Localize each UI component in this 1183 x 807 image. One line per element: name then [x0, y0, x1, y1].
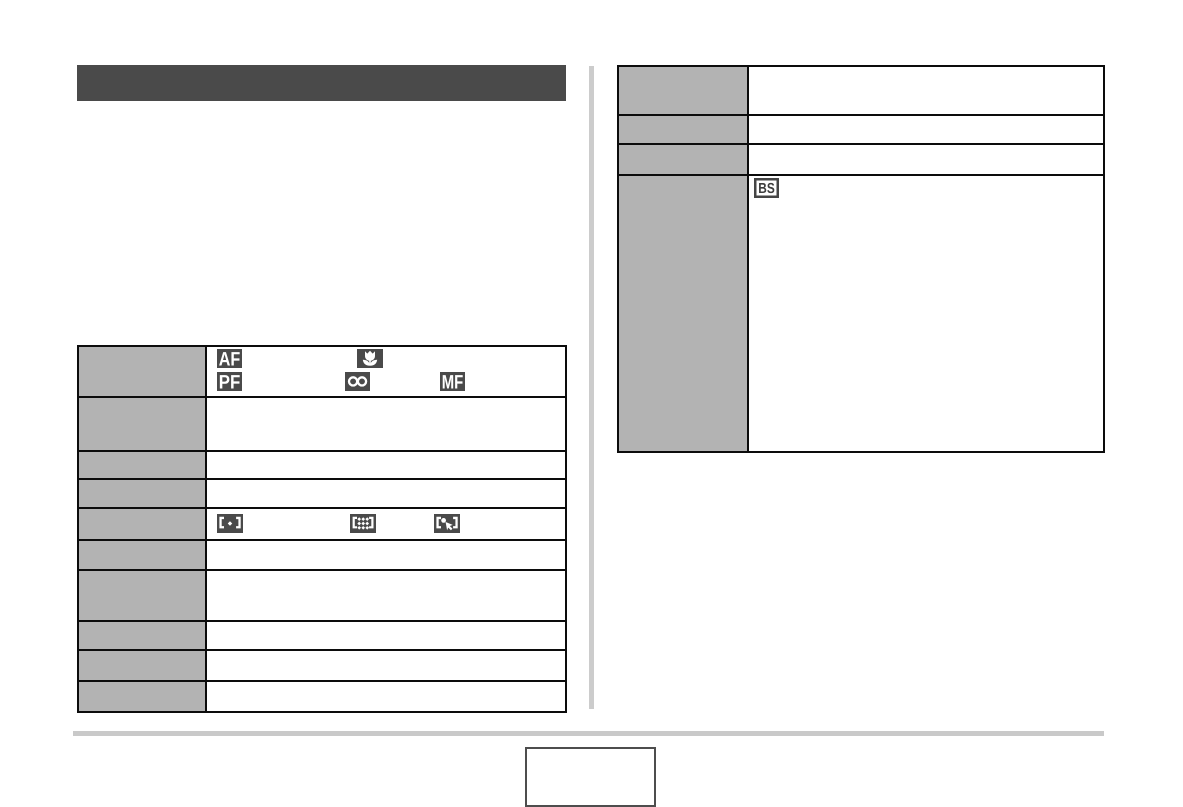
svg-text:BS: BS: [758, 181, 775, 197]
svg-text:PF: PF: [219, 372, 241, 391]
svg-text:AF: AF: [219, 349, 241, 368]
svg-text:MF: MF: [442, 372, 464, 391]
